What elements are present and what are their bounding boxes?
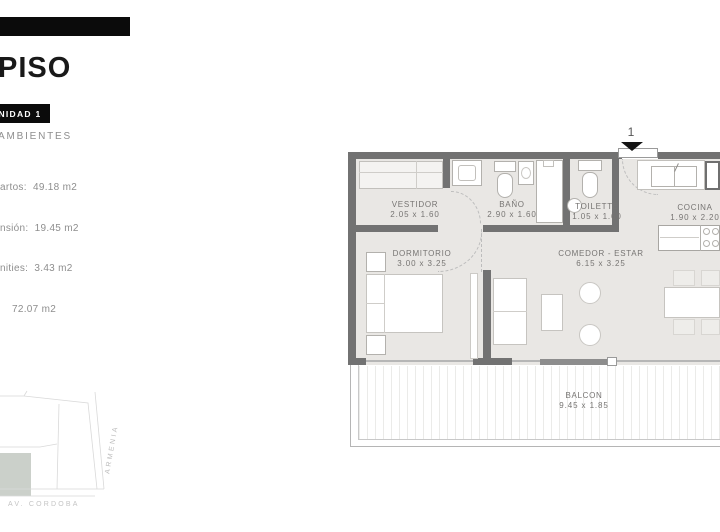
coffee-table (541, 294, 563, 331)
room-label-balcon: BALCON 9.45 x 1.85 (559, 391, 609, 410)
page-title: PISO (0, 52, 71, 85)
logo-bar (0, 17, 130, 36)
room-label-cocina: COCINA 1.90 x 2.20 (670, 203, 720, 222)
entry-arrow-icon (621, 142, 643, 151)
bidet-basin (521, 167, 531, 179)
room-label-comedor-estar: COMEDOR - ESTAR 6.15 x 3.25 (558, 249, 643, 268)
toilette-bowl (582, 172, 598, 198)
dining-chair (673, 319, 695, 335)
room-label-toilette: TOILETTE 1.05 x 1.60 (572, 202, 622, 221)
room-dims: 1.05 x 1.60 (572, 212, 622, 222)
toilet-bowl (497, 173, 513, 198)
room-dims: 9.45 x 1.85 (559, 401, 609, 411)
bedroom-door-leaf (481, 229, 482, 272)
site-map (0, 385, 160, 532)
sofa-cushion-line (493, 311, 527, 312)
wall-divider-living (483, 270, 491, 365)
room-dims: 3.00 x 3.25 (393, 259, 452, 269)
window-line (512, 360, 540, 362)
dining-chair (701, 270, 720, 286)
room-dims: 6.15 x 3.25 (558, 259, 643, 269)
toilet-tank (494, 161, 516, 172)
bed-headboard-line (384, 274, 385, 333)
wall-bano-bottom (483, 225, 612, 232)
room-label-dormitorio: DORMITORIO 3.00 x 3.25 (393, 249, 452, 268)
window-line (617, 360, 720, 362)
dining-table (664, 287, 720, 318)
wall-left (348, 152, 356, 365)
nightstand (366, 252, 386, 272)
wall-dormitorio-top (348, 225, 438, 232)
room-name: COCINA (670, 203, 720, 213)
nightstand (366, 335, 386, 355)
room-name: VESTIDOR (390, 200, 440, 210)
room-name: TOILETTE (572, 202, 622, 212)
wall-top-right (658, 152, 720, 159)
room-label-vestidor: VESTIDOR 2.05 x 1.60 (390, 200, 440, 219)
wall-vestidor-bano (443, 152, 450, 188)
spec-line: nsión: 19.45 m2 (0, 222, 79, 236)
spec-line-total: 72.07 m2 (12, 303, 79, 317)
balcony-decking (359, 366, 720, 439)
ambientes-label: AMBIENTES (0, 131, 72, 142)
dining-chair (673, 270, 695, 286)
shower (536, 160, 563, 223)
wall-balcony-seg2 (473, 358, 512, 365)
bed-pillow-line (366, 303, 384, 304)
wall-balcony-seg1 (348, 358, 366, 365)
vanity-basin (458, 165, 476, 181)
room-name: BAÑO (487, 200, 537, 210)
wall-top-left (348, 152, 622, 159)
burner (712, 228, 719, 235)
kitchen-island (658, 225, 720, 251)
wall-bano-toilette (563, 159, 570, 232)
fridge (705, 161, 720, 190)
floorplan-page: PISO UNIDAD 1 AMBIENTES artos: 49.18 m2 … (0, 0, 720, 532)
island-mid-line (660, 237, 699, 238)
unit-badge: UNIDAD 1 (0, 104, 50, 123)
room-name: BALCON (559, 391, 609, 401)
pouf (579, 324, 601, 346)
toilette-tank (578, 160, 602, 171)
shower-head (543, 160, 554, 167)
cooktop-divider (700, 225, 701, 251)
burner (703, 228, 710, 235)
room-name: DORMITORIO (393, 249, 452, 259)
room-name: COMEDOR - ESTAR (558, 249, 643, 259)
burner (703, 240, 710, 247)
window-line (366, 360, 473, 362)
wardrobe-strip (470, 273, 478, 359)
dining-chair (701, 319, 720, 335)
spec-line: nities: 3.43 m2 (0, 262, 79, 276)
closet-divider-line (416, 161, 417, 189)
closet (359, 161, 443, 189)
street-label-cordoba: AV. CORDOBA (8, 501, 80, 508)
burner (712, 240, 719, 247)
area-specs: artos: 49.18 m2 nsión: 19.45 m2 nities: … (0, 154, 79, 343)
site-lot-highlight (0, 453, 31, 496)
closet-shelf-line (359, 172, 443, 173)
room-dims: 2.05 x 1.60 (390, 210, 440, 220)
spec-line: artos: 49.18 m2 (0, 181, 79, 195)
entry-number-label: 1 (622, 125, 640, 139)
pouf (579, 282, 601, 304)
room-label-bano: BAÑO 2.90 x 1.60 (487, 200, 537, 219)
room-dims: 2.90 x 1.60 (487, 210, 537, 220)
room-dims: 1.90 x 2.20 (670, 213, 720, 223)
